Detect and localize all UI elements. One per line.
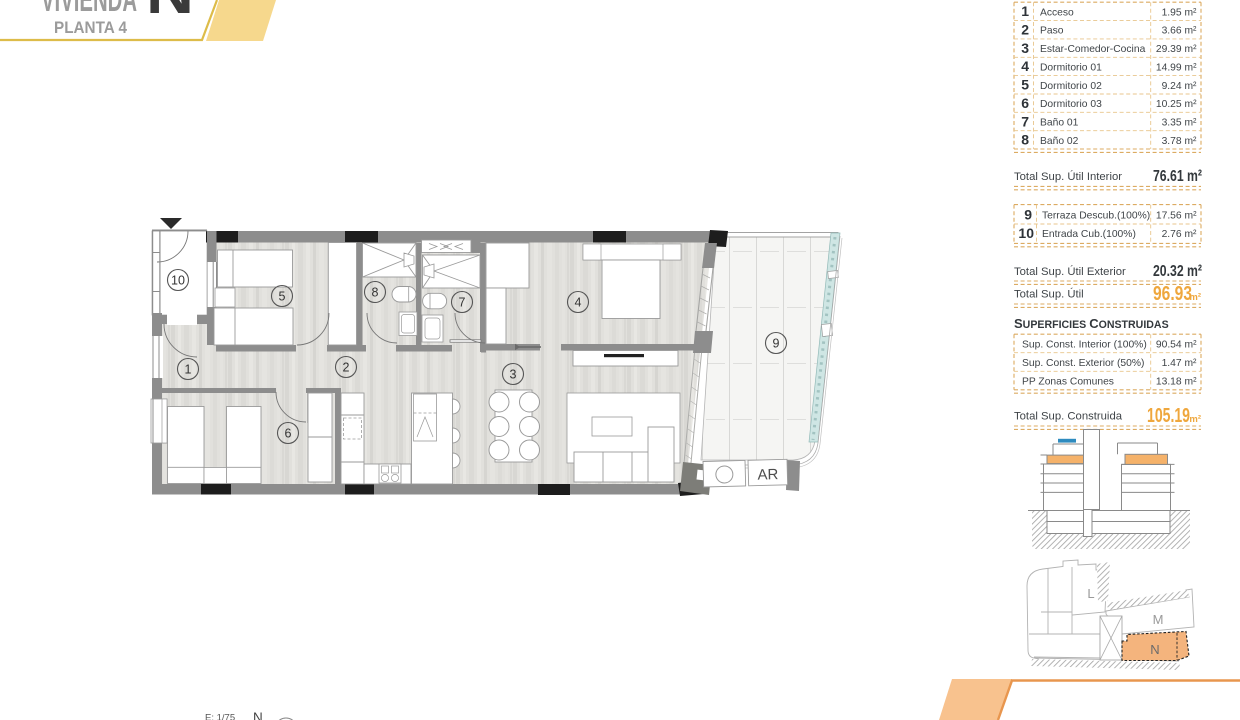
svg-text:VIVIENDA: VIVIENDA xyxy=(41,0,137,19)
svg-text:14.99 m²: 14.99 m² xyxy=(1156,62,1197,73)
svg-text:2: 2 xyxy=(343,361,350,375)
svg-text:7: 7 xyxy=(459,296,466,310)
svg-text:Paso: Paso xyxy=(1040,26,1064,37)
svg-text:L: L xyxy=(1087,586,1094,601)
svg-text:1.47 m²: 1.47 m² xyxy=(1162,358,1197,369)
svg-text:29.39 m²: 29.39 m² xyxy=(1156,44,1197,55)
svg-text:96.93: 96.93 xyxy=(1153,283,1192,305)
svg-text:17.56 m²: 17.56 m² xyxy=(1156,211,1197,222)
svg-text:PP Zonas Comunes: PP Zonas Comunes xyxy=(1022,376,1114,387)
svg-text:N: N xyxy=(146,0,194,26)
svg-text:3.35 m²: 3.35 m² xyxy=(1162,118,1197,129)
svg-text:1.95 m²: 1.95 m² xyxy=(1162,7,1197,18)
svg-text:5: 5 xyxy=(279,290,286,304)
svg-text:10.25 m²: 10.25 m² xyxy=(1156,99,1197,110)
svg-text:Total Sup. Útil Interior: Total Sup. Útil Interior xyxy=(1014,170,1122,183)
svg-text:2: 2 xyxy=(1021,22,1029,38)
svg-text:6: 6 xyxy=(285,427,292,441)
svg-text:Baño 02: Baño 02 xyxy=(1040,136,1079,147)
svg-text:PLANTA 4: PLANTA 4 xyxy=(54,18,127,37)
svg-text:6: 6 xyxy=(1021,95,1029,111)
svg-text:SUPERFICIES CONSTRUIDAS: SUPERFICIES CONSTRUIDAS xyxy=(1014,316,1169,331)
svg-text:m²: m² xyxy=(1189,292,1201,303)
svg-text:3.78 m²: 3.78 m² xyxy=(1162,136,1197,147)
svg-text:1: 1 xyxy=(1021,3,1029,19)
svg-text:76.61 m²: 76.61 m² xyxy=(1153,168,1202,185)
svg-text:90.54 m²: 90.54 m² xyxy=(1156,339,1197,350)
svg-text:AR: AR xyxy=(757,466,778,484)
svg-text:Total Sup. Útil: Total Sup. Útil xyxy=(1014,288,1084,301)
svg-text:3: 3 xyxy=(1021,40,1029,56)
svg-text:Estar-Comedor-Cocina: Estar-Comedor-Cocina xyxy=(1040,44,1146,55)
svg-text:10: 10 xyxy=(1018,225,1034,241)
svg-text:Total Sup. Construida: Total Sup. Construida xyxy=(1014,411,1123,423)
svg-text:105.19: 105.19 xyxy=(1147,405,1190,427)
svg-text:N: N xyxy=(253,710,263,720)
svg-text:8: 8 xyxy=(1021,132,1029,148)
svg-text:M: M xyxy=(1153,612,1164,627)
svg-text:3.66 m²: 3.66 m² xyxy=(1162,26,1197,37)
svg-text:5: 5 xyxy=(1021,77,1029,93)
svg-text:20.32 m²: 20.32 m² xyxy=(1153,263,1202,280)
svg-text:Dormitorio 01: Dormitorio 01 xyxy=(1040,62,1102,73)
svg-text:Acceso: Acceso xyxy=(1040,7,1074,18)
svg-text:N: N xyxy=(1150,642,1159,657)
svg-text:Sup. Const. Interior (100%): Sup. Const. Interior (100%) xyxy=(1022,339,1147,350)
svg-text:9: 9 xyxy=(1024,207,1032,223)
svg-text:7: 7 xyxy=(1021,113,1029,129)
svg-text:3: 3 xyxy=(510,368,517,382)
svg-text:Terraza Descub.(100%): Terraza Descub.(100%) xyxy=(1042,211,1150,222)
svg-text:8: 8 xyxy=(372,286,379,300)
svg-text:Dormitorio 02: Dormitorio 02 xyxy=(1040,81,1102,92)
svg-text:4: 4 xyxy=(575,296,582,310)
svg-text:m²: m² xyxy=(1189,414,1201,425)
svg-text:Total Sup. Útil Exterior: Total Sup. Útil Exterior xyxy=(1014,265,1126,278)
svg-text:4: 4 xyxy=(1021,58,1029,74)
svg-text:E: 1/75: E: 1/75 xyxy=(205,713,235,720)
svg-text:13.18 m²: 13.18 m² xyxy=(1156,376,1197,387)
svg-text:Baño 01: Baño 01 xyxy=(1040,118,1079,129)
svg-text:9.24 m²: 9.24 m² xyxy=(1162,81,1197,92)
svg-text:Entrada Cub.(100%): Entrada Cub.(100%) xyxy=(1042,229,1136,240)
svg-text:10: 10 xyxy=(171,274,185,288)
svg-text:Dormitorio 03: Dormitorio 03 xyxy=(1040,99,1102,110)
svg-text:2.76 m²: 2.76 m² xyxy=(1162,229,1197,240)
svg-text:1: 1 xyxy=(185,363,192,377)
svg-text:9: 9 xyxy=(773,337,780,351)
svg-text:Sup. Const. Exterior (50%): Sup. Const. Exterior (50%) xyxy=(1022,358,1144,369)
